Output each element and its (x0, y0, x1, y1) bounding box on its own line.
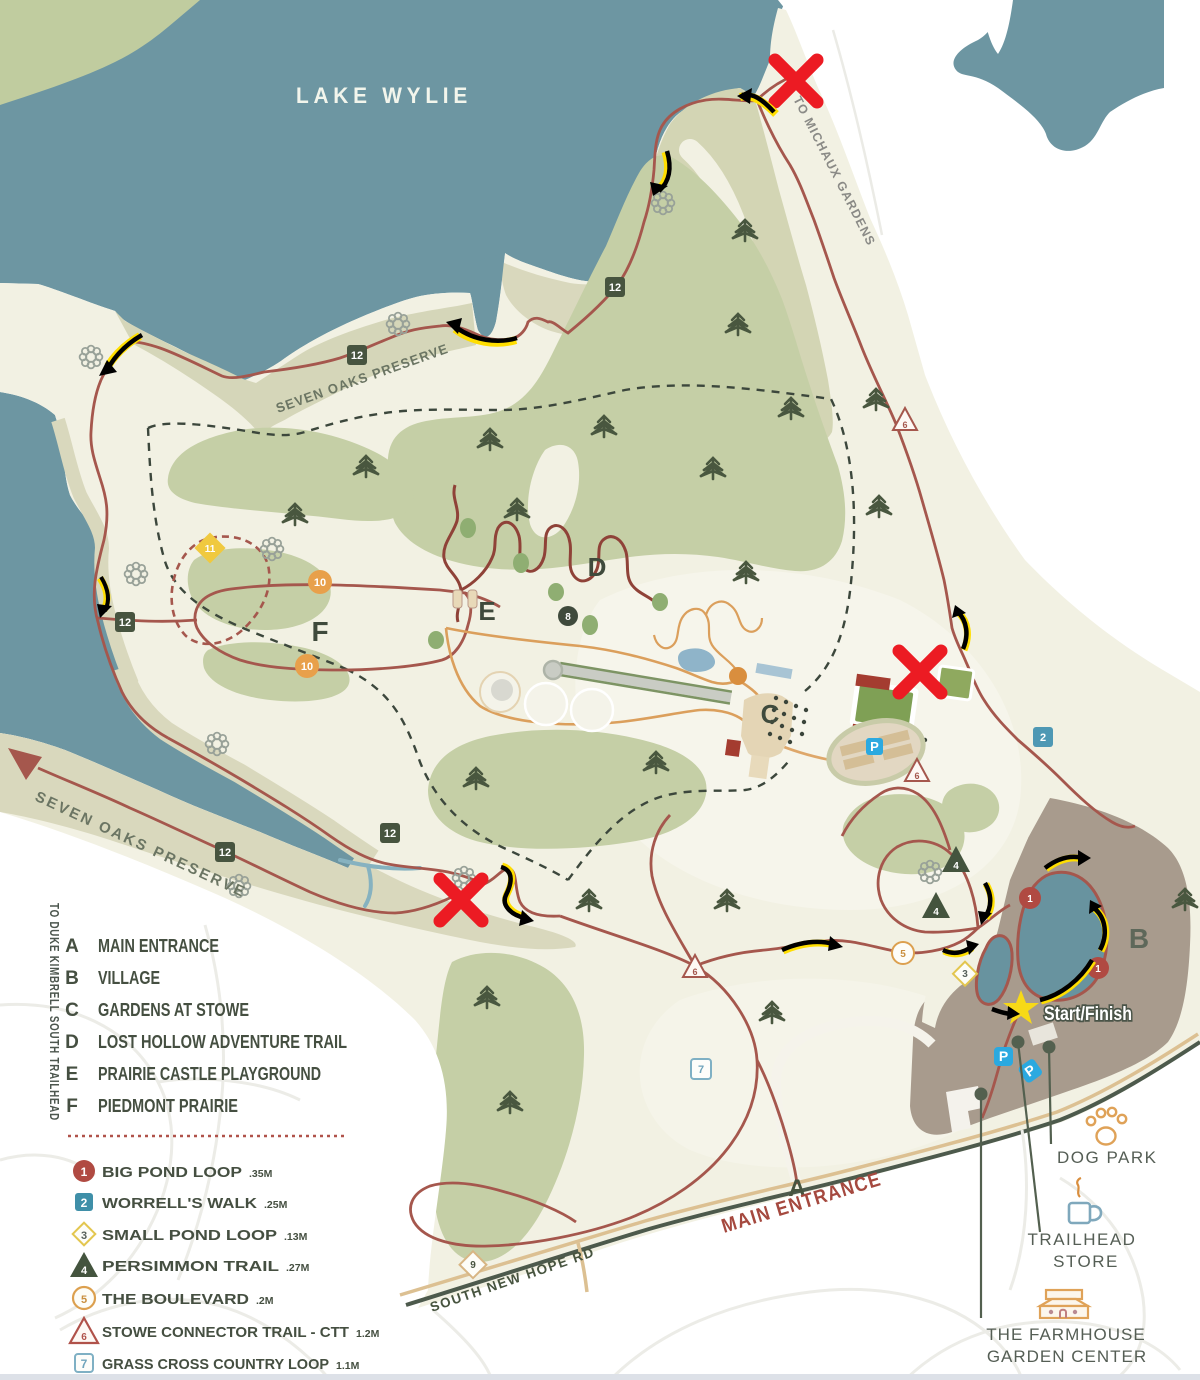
svg-text:E: E (66, 1064, 79, 1085)
svg-text:.27M: .27M (286, 1262, 310, 1274)
svg-text:A: A (65, 936, 79, 957)
svg-text:VILLAGE: VILLAGE (98, 967, 160, 988)
svg-text:PERSIMMON TRAIL: PERSIMMON TRAIL (102, 1258, 279, 1275)
svg-text:.2M: .2M (256, 1295, 274, 1307)
svg-text:2: 2 (1040, 732, 1046, 744)
svg-text:F: F (311, 616, 328, 647)
svg-text:8: 8 (565, 612, 571, 623)
svg-text:7: 7 (81, 1357, 88, 1371)
svg-text:5: 5 (900, 949, 906, 960)
svg-text:GRASS CROSS COUNTRY LOOP: GRASS CROSS COUNTRY LOOP (102, 1356, 329, 1373)
svg-text:THE BOULEVARD: THE BOULEVARD (102, 1291, 249, 1308)
svg-text:F: F (66, 1096, 78, 1117)
svg-text:1: 1 (1027, 894, 1033, 905)
svg-text:STOWE CONNECTOR TRAIL - CTT: STOWE CONNECTOR TRAIL - CTT (102, 1324, 349, 1341)
svg-text:.25M: .25M (264, 1199, 288, 1211)
svg-text:C: C (65, 1000, 79, 1021)
svg-text:P: P (870, 739, 879, 754)
svg-text:11: 11 (205, 544, 216, 555)
svg-text:10: 10 (314, 577, 326, 589)
svg-text:6: 6 (81, 1332, 87, 1343)
svg-text:B: B (1129, 923, 1149, 954)
svg-text:D: D (588, 552, 607, 582)
svg-text:1.1M: 1.1M (336, 1360, 360, 1372)
svg-text:TO DUKE KIMBRELL SOUTH TRAILHE: TO DUKE KIMBRELL SOUTH TRAILHEAD (47, 903, 61, 1121)
svg-text:6: 6 (692, 967, 697, 977)
svg-text:12: 12 (351, 350, 363, 362)
svg-text:P: P (999, 1048, 1008, 1064)
svg-text:4: 4 (81, 1265, 88, 1277)
svg-text:DOG PARK: DOG PARK (1057, 1148, 1157, 1167)
svg-text:LAKE WYLIE: LAKE WYLIE (296, 83, 472, 108)
svg-text:6: 6 (914, 771, 919, 781)
svg-text:1: 1 (81, 1165, 88, 1179)
svg-text:.35M: .35M (249, 1168, 273, 1180)
svg-text:9: 9 (470, 1260, 476, 1271)
svg-text:5: 5 (81, 1294, 87, 1306)
svg-text:2: 2 (81, 1196, 88, 1210)
svg-text:C: C (761, 699, 780, 729)
svg-text:4: 4 (933, 907, 939, 918)
svg-text:THE FARMHOUSE: THE FARMHOUSE (986, 1325, 1145, 1344)
svg-text:B: B (65, 968, 79, 989)
svg-text:10: 10 (301, 661, 313, 673)
svg-text:LOST HOLLOW ADVENTURE TRAIL: LOST HOLLOW ADVENTURE TRAIL (98, 1031, 347, 1052)
svg-text:D: D (65, 1032, 79, 1053)
svg-text:GARDENS AT STOWE: GARDENS AT STOWE (98, 999, 249, 1020)
svg-text:BIG POND LOOP: BIG POND LOOP (102, 1164, 242, 1181)
svg-text:3: 3 (962, 969, 968, 980)
svg-text:TRAILHEAD: TRAILHEAD (1028, 1230, 1137, 1249)
svg-text:1: 1 (1095, 964, 1101, 975)
svg-text:.13M: .13M (284, 1231, 308, 1243)
svg-text:12: 12 (609, 282, 621, 294)
svg-text:12: 12 (384, 828, 396, 840)
svg-text:1.2M: 1.2M (356, 1328, 380, 1340)
svg-text:4: 4 (953, 861, 959, 872)
svg-text:12: 12 (119, 617, 131, 629)
svg-text:SMALL POND LOOP: SMALL POND LOOP (102, 1227, 277, 1244)
svg-text:6: 6 (902, 420, 907, 430)
svg-text:7: 7 (698, 1064, 704, 1076)
svg-text:E: E (478, 596, 495, 626)
svg-text:PIEDMONT PRAIRIE: PIEDMONT PRAIRIE (98, 1095, 238, 1116)
svg-text:MAIN ENTRANCE: MAIN ENTRANCE (98, 935, 219, 956)
svg-text:12: 12 (219, 847, 231, 859)
svg-text:PRAIRIE CASTLE PLAYGROUND: PRAIRIE CASTLE PLAYGROUND (98, 1063, 321, 1084)
svg-text:3: 3 (81, 1230, 87, 1242)
svg-text:STORE: STORE (1053, 1252, 1119, 1271)
svg-text:GARDEN CENTER: GARDEN CENTER (987, 1347, 1147, 1366)
svg-text:Start/Finish: Start/Finish (1044, 1004, 1132, 1025)
svg-text:WORRELL'S WALK: WORRELL'S WALK (102, 1195, 257, 1212)
